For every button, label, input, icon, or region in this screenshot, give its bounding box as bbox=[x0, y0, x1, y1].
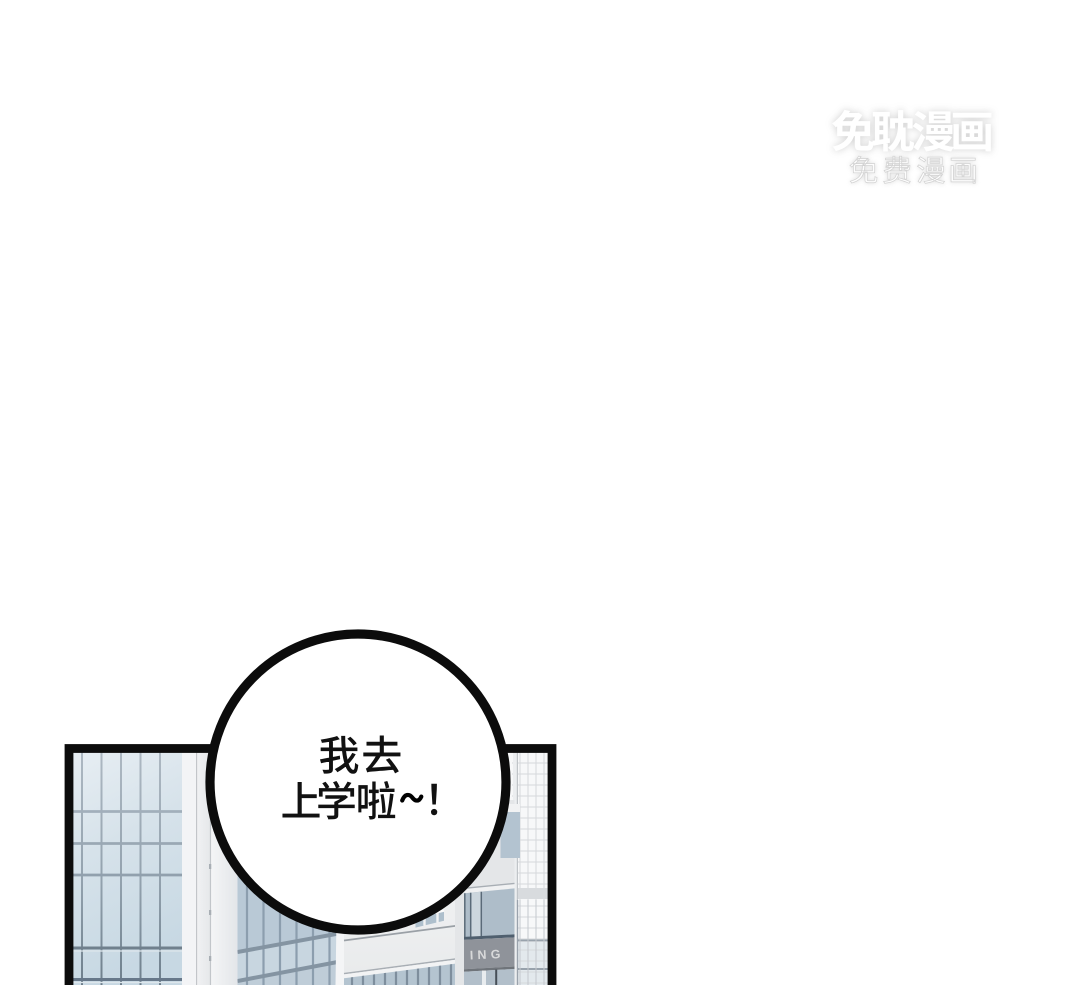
svg-text:ING: ING bbox=[470, 947, 505, 963]
